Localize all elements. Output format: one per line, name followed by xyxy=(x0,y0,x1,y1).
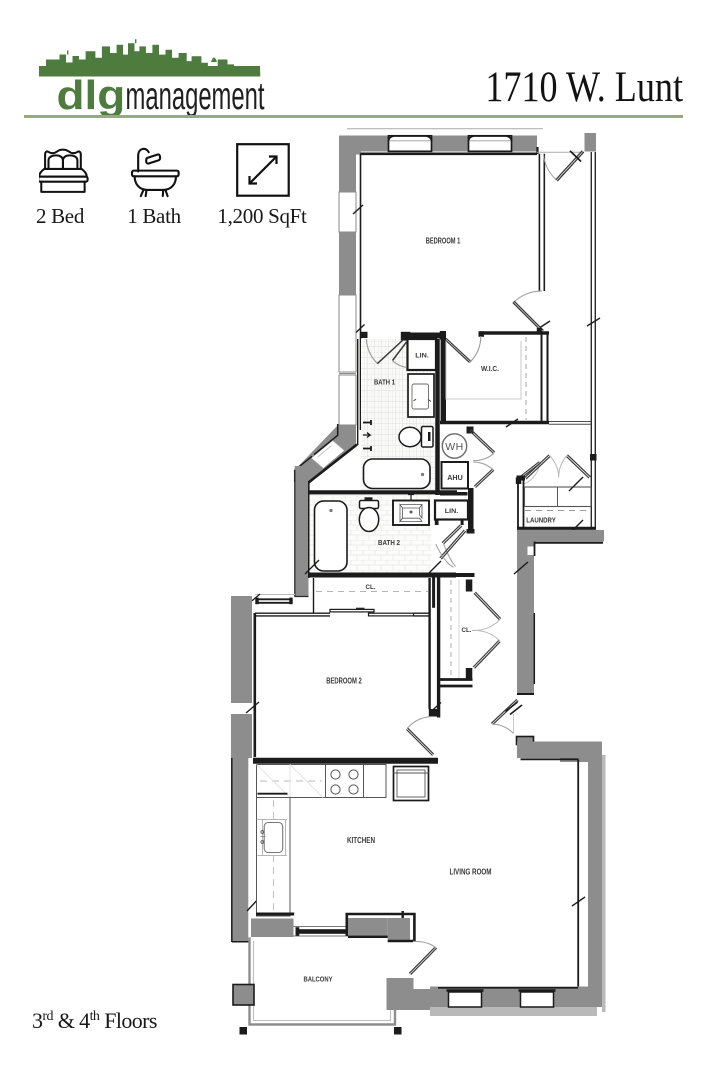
svg-text:AHU: AHU xyxy=(447,473,463,482)
svg-text:BATH 1: BATH 1 xyxy=(374,378,395,387)
svg-text:BEDROOM 2: BEDROOM 2 xyxy=(326,676,362,685)
svg-text:LIN.: LIN. xyxy=(415,352,429,359)
svg-text:BALCONY: BALCONY xyxy=(304,975,333,984)
svg-text:CL.: CL. xyxy=(462,627,472,634)
svg-text:BEDROOM 1: BEDROOM 1 xyxy=(426,236,461,245)
svg-text:WH: WH xyxy=(445,441,464,453)
svg-text:W.I.C.: W.I.C. xyxy=(481,364,499,373)
svg-text:LIVING ROOM: LIVING ROOM xyxy=(450,868,492,877)
svg-text:BATH 2: BATH 2 xyxy=(378,538,400,547)
svg-text:KITCHEN: KITCHEN xyxy=(347,836,375,845)
svg-text:LAUNDRY: LAUNDRY xyxy=(526,515,556,524)
svg-text:CL.: CL. xyxy=(366,584,376,591)
svg-text:LIN.: LIN. xyxy=(445,508,459,515)
